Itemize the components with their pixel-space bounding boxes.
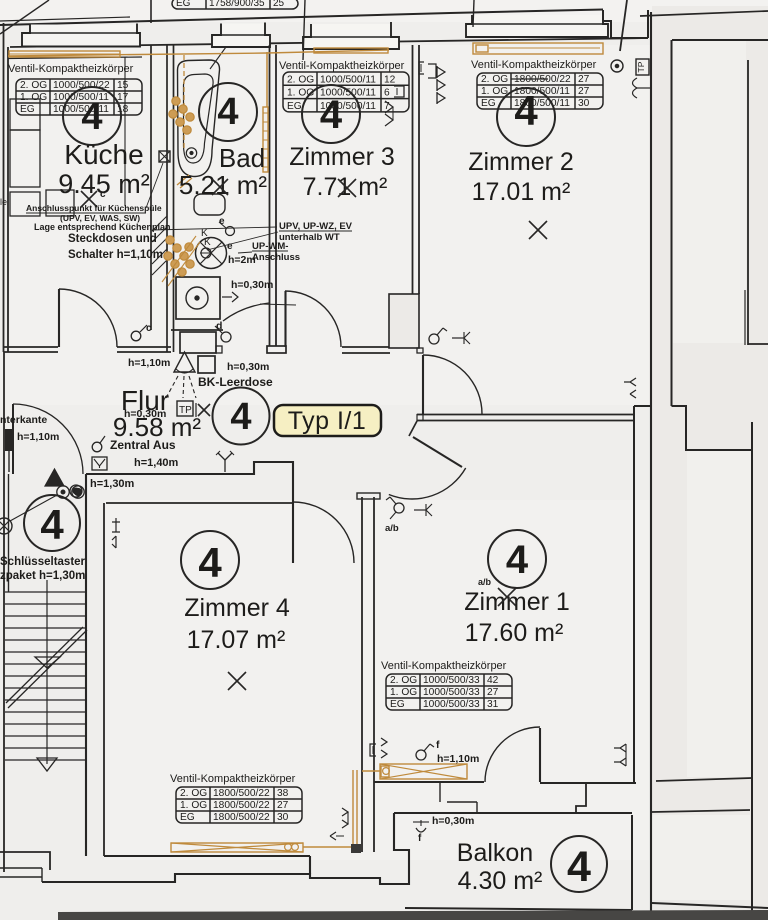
svg-text:Typ I/1: Typ I/1 bbox=[288, 407, 367, 435]
svg-text:f: f bbox=[436, 739, 440, 751]
svg-text:4: 4 bbox=[198, 539, 222, 586]
svg-text:EG: EG bbox=[390, 699, 405, 710]
svg-text:38: 38 bbox=[277, 788, 289, 799]
svg-text:EG: EG bbox=[287, 101, 302, 112]
svg-text:2. OG: 2. OG bbox=[481, 74, 508, 85]
svg-text:30: 30 bbox=[578, 98, 590, 109]
svg-text:Anschluss: Anschluss bbox=[252, 252, 300, 263]
svg-text:h=1,30m: h=1,30m bbox=[90, 478, 135, 490]
svg-text:Ventil-Kompaktheizkörper: Ventil-Kompaktheizkörper bbox=[8, 63, 134, 75]
svg-text:2. OG: 2. OG bbox=[390, 675, 417, 686]
svg-text:17.60 m²: 17.60 m² bbox=[465, 619, 564, 647]
svg-text:15: 15 bbox=[117, 80, 129, 91]
svg-text:Balkon: Balkon bbox=[457, 839, 533, 867]
svg-text:25: 25 bbox=[273, 0, 285, 9]
svg-text:2. OG: 2. OG bbox=[20, 80, 47, 91]
svg-text:K: K bbox=[204, 237, 211, 248]
svg-text:h=2m: h=2m bbox=[228, 254, 256, 266]
svg-text:1. OG: 1. OG bbox=[180, 800, 207, 811]
svg-text:27: 27 bbox=[487, 687, 499, 698]
svg-text:c: c bbox=[100, 189, 106, 200]
svg-text:4: 4 bbox=[217, 91, 238, 133]
svg-text:h=0,30m: h=0,30m bbox=[432, 815, 474, 827]
svg-text:17: 17 bbox=[117, 92, 129, 103]
svg-text:le: le bbox=[0, 197, 7, 207]
svg-text:1800/500/22: 1800/500/22 bbox=[213, 800, 270, 811]
svg-text:Ventil-Kompaktheizkörper: Ventil-Kompaktheizkörper bbox=[381, 660, 507, 672]
svg-text:Schalter h=1,10m: Schalter h=1,10m bbox=[68, 249, 163, 261]
svg-text:1000/500/33: 1000/500/33 bbox=[423, 699, 480, 710]
svg-text:27: 27 bbox=[277, 800, 289, 811]
svg-text:4: 4 bbox=[567, 843, 591, 891]
svg-text:h=1,40m: h=1,40m bbox=[134, 457, 179, 469]
svg-text:EG: EG bbox=[20, 104, 35, 115]
svg-text:Küche: Küche bbox=[64, 139, 143, 170]
svg-text:TP: TP bbox=[636, 61, 646, 72]
svg-text:Zimmer 3: Zimmer 3 bbox=[289, 143, 395, 171]
svg-text:42: 42 bbox=[487, 675, 499, 686]
svg-text:1000/500/33: 1000/500/33 bbox=[423, 675, 480, 686]
svg-text:31: 31 bbox=[487, 699, 499, 710]
svg-text:EG: EG bbox=[180, 812, 195, 823]
svg-text:UP-WM-: UP-WM- bbox=[252, 241, 288, 252]
svg-text:Ventil-Kompaktheizkörper: Ventil-Kompaktheizkörper bbox=[170, 773, 296, 785]
svg-text:Schlüsseltaster: Schlüsseltaster bbox=[0, 556, 86, 568]
svg-text:Anschlusspunkt für Küchenspüle: Anschlusspunkt für Küchenspüle bbox=[26, 203, 162, 213]
svg-text:h=1,10m: h=1,10m bbox=[437, 753, 479, 765]
svg-text:4.30 m²: 4.30 m² bbox=[458, 867, 543, 895]
svg-text:4: 4 bbox=[40, 501, 64, 548]
svg-text:h=1,10m: h=1,10m bbox=[128, 357, 170, 369]
svg-text:4: 4 bbox=[230, 396, 251, 438]
svg-text:UPV, UP-WZ, EV: UPV, UP-WZ, EV bbox=[279, 221, 353, 232]
svg-text:a/b: a/b bbox=[478, 577, 492, 587]
svg-text:17.07 m²: 17.07 m² bbox=[187, 626, 286, 654]
svg-text:2. OG: 2. OG bbox=[180, 788, 207, 799]
svg-text:1758/900/35: 1758/900/35 bbox=[209, 0, 265, 9]
svg-text:h=0,30m: h=0,30m bbox=[231, 279, 273, 291]
svg-text:2. OG: 2. OG bbox=[287, 74, 314, 85]
svg-text:BK-Leerdose: BK-Leerdose bbox=[198, 375, 273, 389]
svg-text:1000/500/33: 1000/500/33 bbox=[423, 687, 480, 698]
svg-text:Zentral Aus: Zentral Aus bbox=[110, 438, 176, 452]
svg-text:Ventil-Kompaktheizkörper: Ventil-Kompaktheizkörper bbox=[471, 59, 597, 71]
svg-text:Lage entsprechend Küchenplan: Lage entsprechend Küchenplan bbox=[34, 222, 171, 232]
svg-text:4: 4 bbox=[514, 87, 538, 134]
svg-text:4: 4 bbox=[81, 96, 102, 138]
svg-text:Zimmer 2: Zimmer 2 bbox=[468, 148, 574, 176]
svg-text:a/b: a/b bbox=[385, 523, 399, 534]
svg-text:30: 30 bbox=[277, 812, 289, 823]
svg-text:1800/500/22: 1800/500/22 bbox=[213, 812, 270, 823]
svg-text:e: e bbox=[227, 241, 233, 252]
svg-text:nterkante: nterkante bbox=[0, 414, 47, 426]
svg-text:1800/500/22: 1800/500/22 bbox=[213, 788, 270, 799]
svg-text:27: 27 bbox=[578, 86, 590, 97]
svg-text:h=0,30m: h=0,30m bbox=[227, 361, 269, 373]
svg-text:Zimmer 1: Zimmer 1 bbox=[464, 588, 570, 616]
svg-text:12: 12 bbox=[384, 74, 396, 85]
svg-text:h=1,10m: h=1,10m bbox=[17, 431, 59, 443]
svg-text:TP: TP bbox=[179, 405, 192, 416]
svg-text:5.21 m²: 5.21 m² bbox=[179, 170, 267, 200]
svg-text:EG: EG bbox=[176, 0, 191, 9]
svg-text:EG: EG bbox=[481, 98, 496, 109]
svg-text:Steckdosen und: Steckdosen und bbox=[68, 233, 157, 245]
svg-text:1. OG: 1. OG bbox=[390, 687, 417, 698]
svg-text:e: e bbox=[219, 216, 225, 227]
svg-text:4: 4 bbox=[320, 93, 343, 137]
svg-text:Bad: Bad bbox=[219, 143, 265, 173]
svg-text:1000/500/11: 1000/500/11 bbox=[320, 74, 376, 85]
svg-text:4: 4 bbox=[506, 538, 529, 582]
svg-text:h=0,30m: h=0,30m bbox=[124, 408, 166, 420]
svg-text:27: 27 bbox=[578, 74, 590, 85]
svg-text:1. OG: 1. OG bbox=[20, 92, 47, 103]
svg-text:Ventil-Kompaktheizkörper: Ventil-Kompaktheizkörper bbox=[279, 60, 405, 72]
svg-text:Zimmer 4: Zimmer 4 bbox=[184, 594, 290, 622]
svg-text:17.01 m²: 17.01 m² bbox=[472, 178, 571, 206]
svg-text:1. OG: 1. OG bbox=[481, 86, 508, 97]
svg-text:6: 6 bbox=[384, 88, 390, 99]
svg-text:zpaket h=1,30m: zpaket h=1,30m bbox=[0, 570, 85, 582]
svg-text:c: c bbox=[146, 323, 152, 334]
